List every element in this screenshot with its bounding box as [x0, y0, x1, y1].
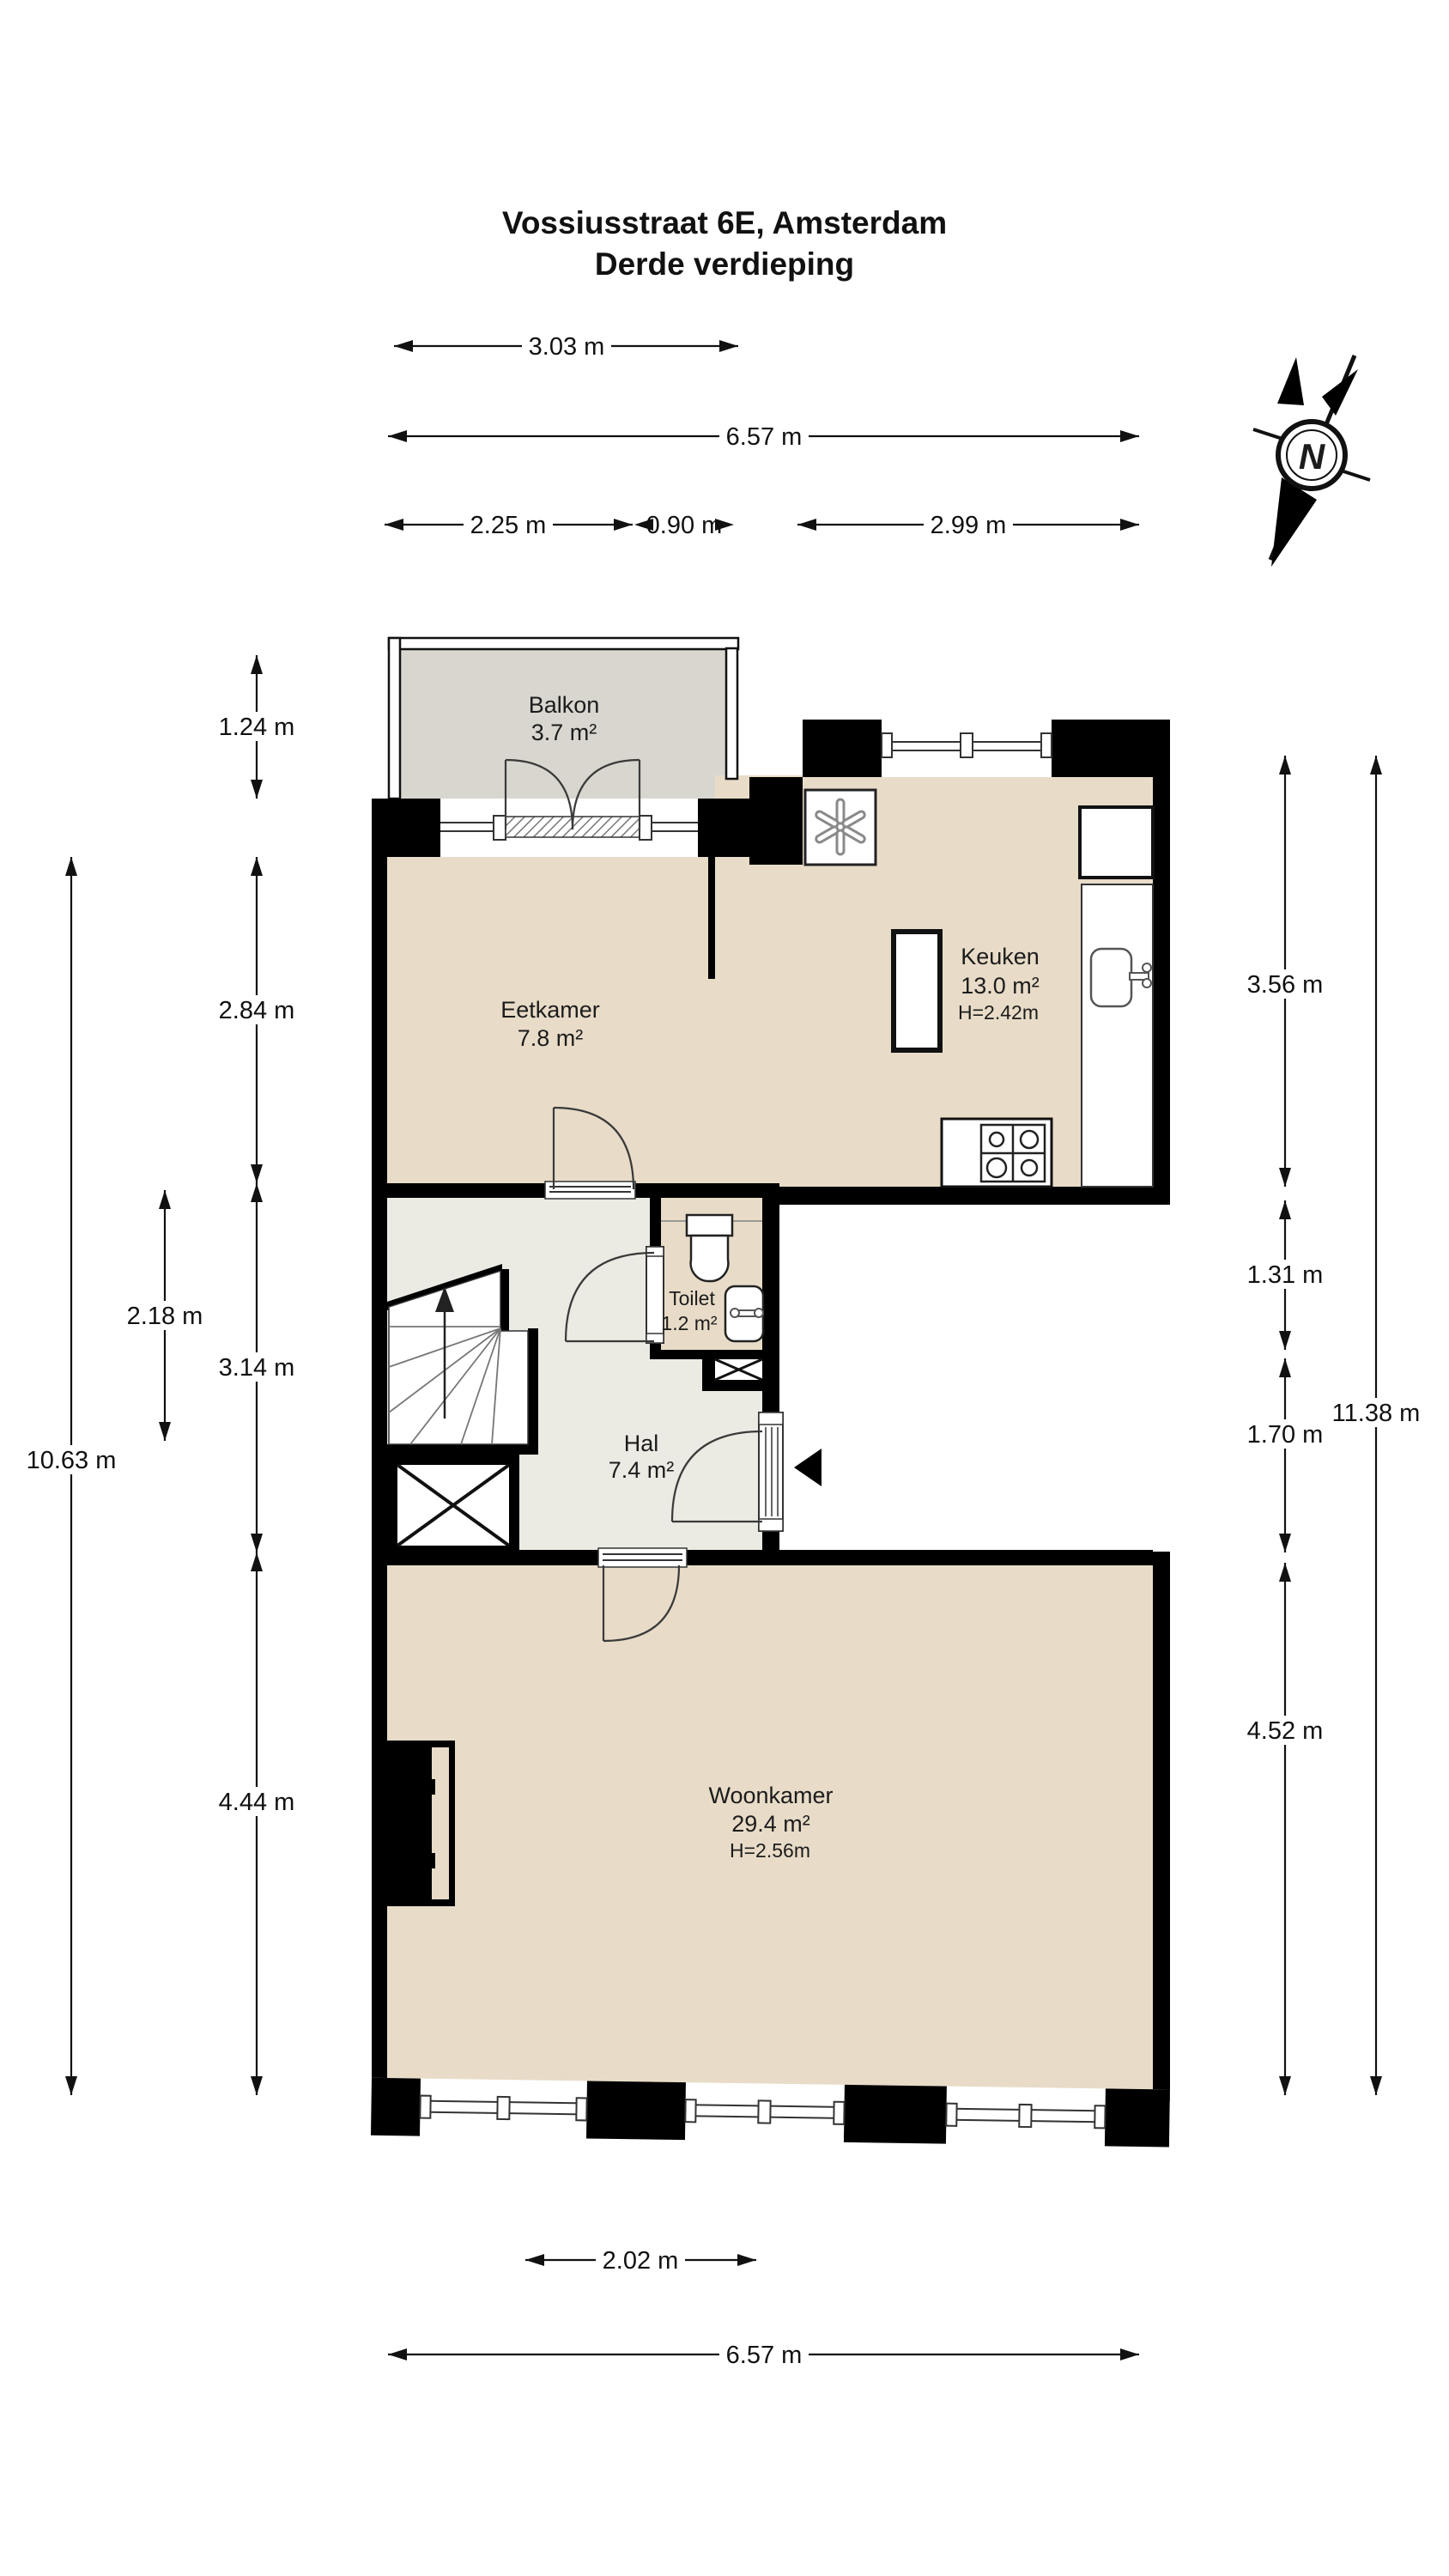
dim-top-c: 2.99 m: [797, 510, 1139, 539]
label-balkon-area: 3.7 m²: [531, 720, 597, 745]
dim-bottom-window: 2.02 m: [525, 2245, 756, 2275]
svg-text:3.14 m: 3.14 m: [219, 1354, 295, 1382]
svg-text:2.84 m: 2.84 m: [219, 997, 295, 1024]
dim-left-eetkamer: 2.84 m: [212, 857, 301, 1183]
svg-text:11.38 m: 11.38 m: [1332, 1400, 1421, 1427]
label-woonkamer-height: H=2.56m: [730, 1839, 810, 1862]
threshold-hal-woonkamer: [598, 1548, 687, 1567]
dim-left-total: 10.63 m: [17, 857, 125, 2095]
dim-top-balkon: 3.03 m: [394, 331, 738, 361]
dim-top-b: 0.90 m: [634, 512, 734, 539]
svg-text:4.44 m: 4.44 m: [219, 1789, 295, 1816]
compass-north-label: N: [1299, 436, 1326, 477]
svg-text:1.70 m: 1.70 m: [1247, 1421, 1324, 1449]
label-toilet-area: 1.2 m²: [661, 1312, 718, 1334]
dim-left-stairs: 2.18 m: [120, 1190, 209, 1441]
toilet-sink-icon: [725, 1286, 763, 1341]
svg-text:2.18 m: 2.18 m: [127, 1303, 203, 1330]
wc-icon: [687, 1215, 732, 1281]
svg-text:10.63 m: 10.63 m: [27, 1447, 117, 1474]
svg-text:0.90 m: 0.90 m: [646, 512, 723, 539]
svg-text:6.57 m: 6.57 m: [726, 423, 803, 451]
elevator-shaft: [397, 1465, 509, 1546]
kitchen-island: [894, 932, 940, 1050]
label-eetkamer-name: Eetkamer: [500, 997, 600, 1023]
label-eetkamer-area: 7.8 m²: [518, 1025, 584, 1051]
dim-right-hal: 1.70 m: [1240, 1358, 1330, 1552]
svg-text:3.56 m: 3.56 m: [1247, 971, 1324, 999]
vent-box: [805, 790, 876, 865]
label-woonkamer-name: Woonkamer: [708, 1783, 833, 1808]
label-hal-area: 7.4 m²: [609, 1457, 675, 1483]
dim-left-hal: 3.14 m: [212, 1183, 301, 1552]
compass-icon: N: [1253, 355, 1370, 567]
svg-text:6.57 m: 6.57 m: [726, 2342, 803, 2369]
entrance-arrow-icon: [794, 1449, 822, 1486]
kitchen-counter: [1082, 884, 1153, 1187]
dim-right-total: 11.38 m: [1322, 756, 1430, 2095]
svg-text:2.99 m: 2.99 m: [931, 512, 1007, 539]
floorplan-drawing: Balkon 3.7 m² Keuken 13.0 m² H=2.42m Eet…: [0, 0, 1449, 2576]
stove: [942, 1119, 1052, 1187]
dim-left-woonkamer: 4.44 m: [212, 1552, 301, 2095]
dim-top-total: 6.57 m: [388, 422, 1139, 451]
svg-text:2.25 m: 2.25 m: [470, 512, 547, 539]
duct-shaft: [715, 1359, 762, 1380]
label-woonkamer-area: 29.4 m²: [731, 1811, 810, 1837]
floorplan-page: Vossiusstraat 6E, Amsterdam Derde verdie…: [0, 0, 1449, 2576]
label-keuken-height: H=2.42m: [958, 1001, 1039, 1024]
window-keuken: [882, 720, 1052, 777]
svg-text:4.52 m: 4.52 m: [1247, 1717, 1324, 1745]
dim-bottom-total: 6.57 m: [388, 2340, 1139, 2369]
label-balkon-name: Balkon: [529, 692, 600, 718]
svg-text:3.03 m: 3.03 m: [529, 333, 605, 361]
dim-left-balkon: 1.24 m: [212, 655, 301, 799]
svg-text:1.24 m: 1.24 m: [219, 714, 295, 741]
dim-right-keuken: 3.56 m: [1240, 756, 1330, 1187]
bottom-facade: [371, 2078, 1170, 2148]
svg-text:1.31 m: 1.31 m: [1247, 1261, 1324, 1289]
dim-top-a: 2.25 m: [385, 510, 633, 539]
label-keuken-name: Keuken: [961, 944, 1040, 969]
label-keuken-area: 13.0 m²: [961, 973, 1040, 999]
label-hal-name: Hal: [624, 1431, 659, 1456]
dim-right-toilet: 1.31 m: [1240, 1200, 1330, 1350]
label-toilet-name: Toilet: [669, 1287, 715, 1309]
svg-text:2.02 m: 2.02 m: [603, 2247, 679, 2275]
threshold-eetkamer-hal: [545, 1182, 635, 1199]
entrance-door-frame: [759, 1413, 783, 1531]
upper-cabinet: [1080, 807, 1153, 878]
dim-right-woonkamer: 4.52 m: [1240, 1563, 1330, 2095]
